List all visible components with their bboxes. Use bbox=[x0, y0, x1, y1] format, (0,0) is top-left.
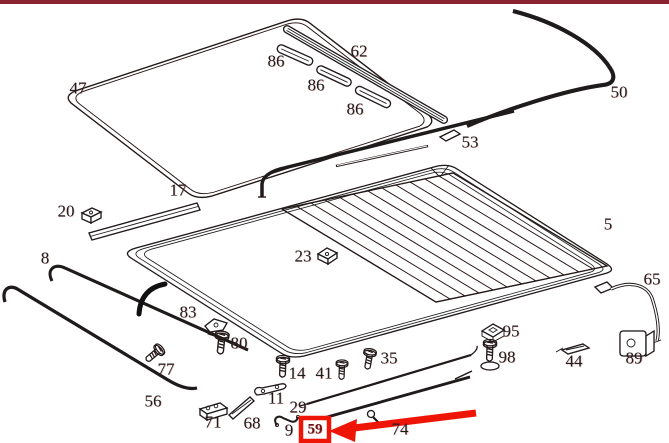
part-label-95[interactable]: 95 bbox=[503, 323, 520, 340]
part-35-screw bbox=[361, 348, 377, 370]
part-label-56[interactable]: 56 bbox=[145, 393, 162, 410]
part-label-11[interactable]: 11 bbox=[268, 390, 284, 407]
part-label-20[interactable]: 20 bbox=[58, 203, 75, 220]
part-label-5[interactable]: 5 bbox=[604, 216, 613, 233]
part-label-9[interactable]: 9 bbox=[285, 422, 294, 439]
part-62-trim-strip bbox=[282, 24, 448, 124]
part-label-86-1[interactable]: 86 bbox=[268, 53, 285, 70]
part-label-23[interactable]: 23 bbox=[295, 248, 312, 265]
sunroof-parts-diagram: 47 86 62 86 86 50 53 17 20 8 5 23 65 83 … bbox=[0, 0, 669, 443]
part-label-83[interactable]: 83 bbox=[180, 304, 197, 321]
part-47-glass-seal-outline bbox=[68, 19, 432, 197]
part-label-41[interactable]: 41 bbox=[316, 365, 333, 382]
part-label-74[interactable]: 74 bbox=[392, 421, 409, 438]
part-label-65[interactable]: 65 bbox=[644, 271, 661, 288]
part-label-50[interactable]: 50 bbox=[611, 84, 628, 101]
part-label-86-2[interactable]: 86 bbox=[308, 77, 325, 94]
part-53-clip-and-rod bbox=[336, 130, 460, 166]
part-label-47[interactable]: 47 bbox=[70, 80, 87, 97]
part-label-17[interactable]: 17 bbox=[170, 182, 187, 199]
part-label-98[interactable]: 98 bbox=[499, 349, 516, 366]
part-label-8[interactable]: 8 bbox=[41, 250, 50, 267]
part-label-62[interactable]: 62 bbox=[351, 43, 368, 60]
part-41-screw bbox=[336, 360, 349, 380]
part-label-29[interactable]: 29 bbox=[290, 399, 307, 416]
diagram-linework-canvas bbox=[0, 0, 669, 443]
part-label-59-highlighted[interactable]: 59 bbox=[308, 423, 323, 438]
part-label-35[interactable]: 35 bbox=[381, 350, 398, 367]
part-label-89[interactable]: 89 bbox=[626, 350, 643, 367]
part-label-68[interactable]: 68 bbox=[244, 415, 261, 432]
part-label-14[interactable]: 14 bbox=[289, 365, 306, 382]
part-20-clip bbox=[82, 208, 101, 223]
part-50-corner-trim bbox=[467, 11, 613, 126]
part-label-53[interactable]: 53 bbox=[462, 134, 479, 151]
part-label-86-3[interactable]: 86 bbox=[347, 101, 364, 118]
part-80-screw bbox=[213, 330, 229, 354]
part-17-guide-rail bbox=[89, 203, 200, 240]
part-label-71[interactable]: 71 bbox=[205, 414, 222, 431]
part-98-screw bbox=[481, 339, 499, 370]
part-label-80[interactable]: 80 bbox=[231, 335, 248, 352]
part-label-77[interactable]: 77 bbox=[158, 361, 175, 378]
part-label-44[interactable]: 44 bbox=[566, 353, 583, 370]
